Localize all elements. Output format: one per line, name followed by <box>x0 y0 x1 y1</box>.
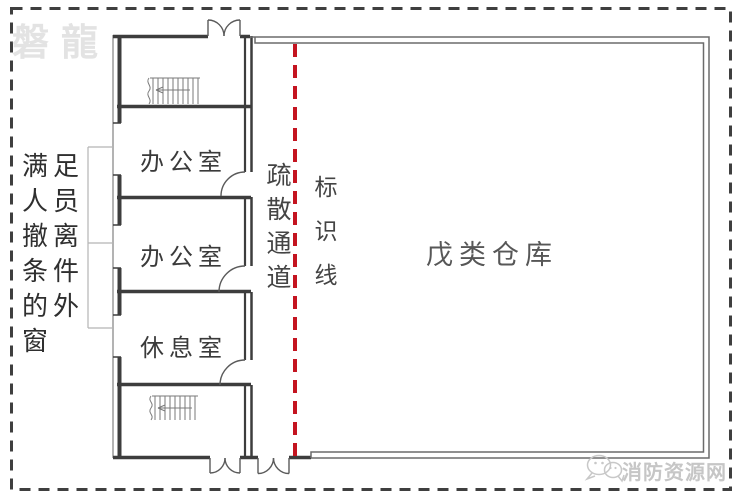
stairs-icon-top <box>148 78 200 104</box>
room-label-warehouse: 戊类仓库 <box>391 233 593 272</box>
bottom-exit-doors <box>210 458 289 474</box>
chat-bubbles-icon <box>587 456 624 482</box>
evacuation-corridor-label: 疏散通道 <box>258 162 294 298</box>
marking-line-label: 标识线 <box>306 175 340 307</box>
room-label-office-1: 办公室 <box>117 142 250 177</box>
floor-plan-page: 磐龍 满足人员撤离条件的外窗 办公室 办公室 休息室 疏散通道 标识线 戊类仓库… <box>0 0 740 501</box>
room-label-rest-room: 休息室 <box>117 328 250 363</box>
window-note-bracket <box>88 147 113 328</box>
window-note-label: 满足人员撤离条件的外窗 <box>22 149 90 359</box>
floor-plan-drawing <box>0 0 740 501</box>
top-exit-door <box>208 20 240 36</box>
stairs-icon-bottom <box>150 396 198 420</box>
room-label-office-2: 办公室 <box>117 237 250 272</box>
bottom-right-watermark: 消防资源网 <box>622 456 727 485</box>
top-left-watermark: 磐龍 <box>12 12 110 66</box>
